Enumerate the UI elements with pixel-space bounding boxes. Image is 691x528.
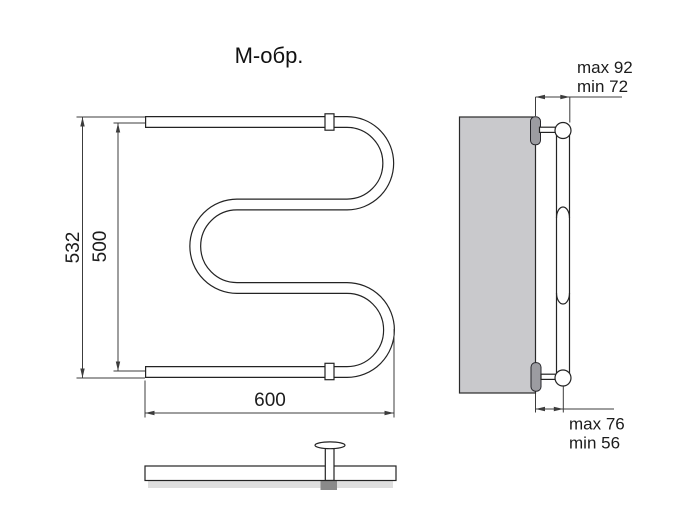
union-fitting-bottom [325,363,334,379]
bar-shadow [148,481,393,488]
dim-label-500: 500 [90,231,111,263]
bottom-view [145,442,396,490]
dim-label-max76: max 76 [569,415,625,434]
front-view [145,114,389,380]
dim-label-600: 600 [254,390,286,411]
wall-plate-bottom [531,363,541,392]
dimension-bottom-clearance: max 76 min 56 [536,387,625,453]
arrowhead [80,117,84,127]
dim-label-min72: min 72 [577,77,628,96]
arrowhead [80,369,84,379]
arrowhead [116,123,120,133]
tube-plan-bar [145,466,396,481]
side-view-dimensions: max 92 min 72 max 76 min 56 [536,58,633,453]
arrowhead [560,95,570,99]
serpentine-tube-body [145,122,389,372]
dimension-top-clearance: max 92 min 72 [536,58,633,123]
drawing-title: М-обр. [235,43,304,68]
towel-rail-drawing: М-обр. 532 500 [0,0,691,528]
stem-shadow [321,481,338,490]
ball-fitting-top [555,123,571,139]
bracket-arm-top [540,127,557,132]
arrowhead [145,411,155,415]
arrowhead [385,411,395,415]
tube-profile-body [557,131,569,377]
bracket-plate-disc [315,442,345,449]
ball-fitting-bottom [555,370,571,386]
dim-label-min56: min 56 [569,434,620,453]
union-fitting-top [325,114,334,130]
arrowhead [536,407,546,411]
serpentine-tube-outline [145,122,389,372]
bracket-stem [325,448,334,480]
dimension-height-centers: 500 [90,123,120,371]
dim-label-532: 532 [63,232,84,264]
dimension-height-overall: 532 [63,117,85,378]
arrowhead [536,95,546,99]
drawing-canvas: М-обр. 532 500 [0,0,691,528]
side-view [460,117,572,393]
arrowhead [116,362,120,372]
arrowhead [554,407,564,411]
dim-label-max92: max 92 [577,58,633,77]
wall-section [460,117,536,393]
